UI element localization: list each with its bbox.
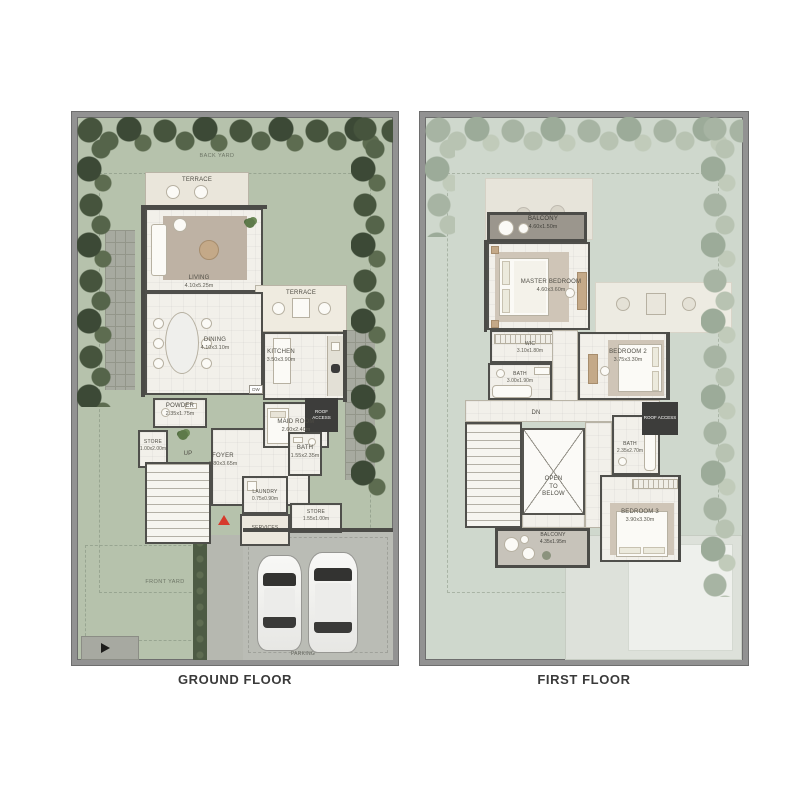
first-floor-caption: FIRST FLOOR	[420, 672, 748, 687]
sink	[293, 437, 303, 443]
stairs-up	[145, 462, 211, 544]
room-dims: 3.00x1.90m	[488, 378, 552, 385]
kitchen-label: KITCHEN 3.50x3.90m	[253, 349, 309, 364]
car-roof	[315, 583, 351, 619]
room-dims: 0.75x0.90m	[235, 496, 295, 503]
car-roof	[264, 588, 295, 615]
room-name: TERRACE	[271, 290, 331, 298]
dishwasher: DW	[249, 385, 263, 394]
roof-access-label: ROOF ACCESS	[644, 415, 677, 421]
roof-access-shaft: ROOF ACCESS	[642, 402, 678, 435]
wall	[667, 332, 670, 400]
kitchen-hob	[331, 364, 340, 373]
chair	[272, 302, 285, 315]
desk-chair	[600, 366, 610, 376]
plant-icon	[245, 218, 255, 228]
powder-label: POWDER 2.35x1.75m	[153, 403, 207, 418]
wardrobe	[632, 479, 678, 489]
dn-label: DN	[521, 410, 551, 418]
nightstand	[491, 246, 499, 254]
stairs-down	[465, 422, 522, 528]
room-name: POWDER	[153, 403, 207, 411]
pillow	[502, 289, 510, 313]
car-rear-window	[263, 617, 296, 628]
room-name: BEDROOM 2	[593, 349, 663, 357]
bedroom-3-label: BEDROOM 3 3.90x3.30m	[600, 509, 680, 524]
bathtub	[492, 385, 532, 398]
chair	[318, 302, 331, 315]
plant-icon	[542, 551, 551, 560]
wall	[141, 205, 145, 397]
bedroom-2-label: BEDROOM 2 3.75x3.30m	[593, 349, 663, 364]
trees-right	[351, 117, 393, 497]
dining-chair	[201, 358, 212, 369]
dining-chair	[201, 318, 212, 329]
trees-left	[77, 117, 119, 407]
void-label: OPEN TO BELOW	[532, 476, 575, 499]
terrace-top-label: TERRACE	[145, 177, 249, 185]
ground-floor-plan: BACK YARD PARKING FRONT YARD TERRACE	[72, 112, 398, 665]
pillow	[619, 547, 641, 554]
front-yard-label: FRONT YARD	[135, 579, 195, 585]
dishwasher-label: DW	[252, 387, 260, 392]
room-dims: 3.50x3.90m	[253, 357, 309, 364]
entrance-arrow-icon	[218, 515, 230, 525]
car-windshield	[314, 568, 352, 581]
dining-chair	[153, 338, 164, 349]
room-dims: 2.35x2.70m	[605, 448, 655, 455]
room-dims: 3.90x3.30m	[600, 517, 680, 524]
sofa	[151, 224, 167, 276]
pillow	[270, 411, 286, 418]
armchair	[194, 185, 208, 199]
armchair	[522, 547, 535, 560]
outdoor-table	[292, 298, 310, 318]
dining-chair	[153, 358, 164, 369]
dining-label: DINING 4.10x3.10m	[185, 337, 245, 352]
wall	[343, 330, 347, 402]
laundry-label: LAUNDRY 0.75x0.90m	[235, 489, 295, 502]
nightstand	[491, 320, 499, 328]
car-suv	[308, 552, 358, 653]
armchair	[166, 185, 180, 199]
room-name: DINING	[185, 337, 245, 345]
car-rear-window	[314, 622, 352, 633]
open-to-below-label: OPEN TO BELOW	[532, 455, 575, 520]
pillow	[643, 547, 665, 554]
room-name: BEDROOM 3	[600, 509, 680, 517]
room-dims: 3.10x1.80m	[490, 348, 570, 355]
pillow	[652, 371, 659, 391]
room-name: MASTER BEDROOM	[516, 279, 586, 287]
wall	[484, 240, 487, 332]
ground-floor-caption: GROUND FLOOR	[72, 672, 398, 687]
front-plot-line	[85, 545, 201, 641]
bath-2-label: BATH 2.35x2.70m	[605, 441, 655, 454]
room-kitchen	[263, 332, 347, 400]
room-dims: 3.75x3.30m	[593, 357, 663, 364]
room-dims: 4.35x1.95m	[520, 539, 586, 546]
room-dims: 4.10x3.10m	[185, 345, 245, 352]
bath-label: BATH 1.55x2.35m	[273, 445, 337, 460]
room-bedroom-2	[578, 332, 668, 400]
outdoor-table	[646, 293, 666, 315]
bath-1-label: BATH 3.00x1.90m	[488, 371, 552, 384]
dining-chair	[153, 318, 164, 329]
room-name: BATH	[273, 445, 337, 453]
coffee-table	[199, 240, 219, 260]
trees-right	[701, 117, 743, 597]
entry-arrow-icon	[101, 643, 110, 653]
stairs-direction: DN	[521, 410, 551, 418]
foyer-label: FOYER 1.80x3.65m	[193, 453, 253, 468]
room-dims: 1.80x3.65m	[193, 461, 253, 468]
services-label: SERVICES	[240, 525, 290, 532]
room-dims: 1.55x2.35m	[273, 453, 337, 460]
store-2-label: STORE 1.55x1.00m	[286, 509, 346, 522]
armchair	[504, 537, 519, 552]
maid-label: MAID ROOM 2.60x2.40m	[263, 419, 329, 434]
balcony-bottom-label: BALCONY 4.35x1.95m	[520, 532, 586, 545]
hedge	[193, 535, 207, 660]
room-dims: 1.55x1.00m	[286, 516, 346, 523]
room-name: MAID ROOM	[263, 419, 329, 427]
trees-left	[425, 117, 455, 237]
room-dims: 4.10x5.25m	[169, 283, 229, 290]
room-name: SERVICES	[240, 525, 290, 532]
room-name: BALCONY	[509, 216, 577, 224]
room-dims: 2.35x1.75m	[153, 411, 207, 418]
living-label: LIVING 4.10x5.25m	[169, 275, 229, 290]
chair	[616, 297, 630, 311]
chair	[682, 297, 696, 311]
room-dims: 2.60x2.40m	[263, 427, 329, 434]
entry-pad	[81, 636, 139, 660]
lounge-chair	[173, 218, 187, 232]
plant-icon	[178, 430, 188, 440]
master-bedroom-label: MASTER BEDROOM 4.60x3.60m	[516, 279, 586, 294]
first-floor-plan: BALCONY 4.60x1.50m MASTER BEDROOM 4.60x3…	[420, 112, 748, 665]
driveway	[207, 535, 243, 660]
car-windshield	[263, 573, 296, 586]
car-sedan	[257, 555, 302, 651]
terrace-side-label: TERRACE	[271, 290, 331, 298]
balcony-top-label: BALCONY 4.60x1.50m	[509, 216, 577, 231]
room-dims: 4.60x1.50m	[509, 224, 577, 231]
wall	[141, 205, 267, 209]
room-name: TERRACE	[145, 177, 249, 185]
trees-top	[425, 117, 743, 163]
room-name: KITCHEN	[253, 349, 309, 357]
room-name: FOYER	[193, 453, 253, 461]
back-yard-label: BACK YARD	[137, 153, 297, 159]
toilet	[618, 457, 627, 466]
room-dims: 4.60x3.60m	[516, 287, 586, 294]
pillow	[502, 261, 510, 285]
kitchen-sink	[331, 342, 340, 351]
room-name: LIVING	[169, 275, 229, 283]
wic-label: WIC 3.10x1.80m	[490, 341, 570, 354]
